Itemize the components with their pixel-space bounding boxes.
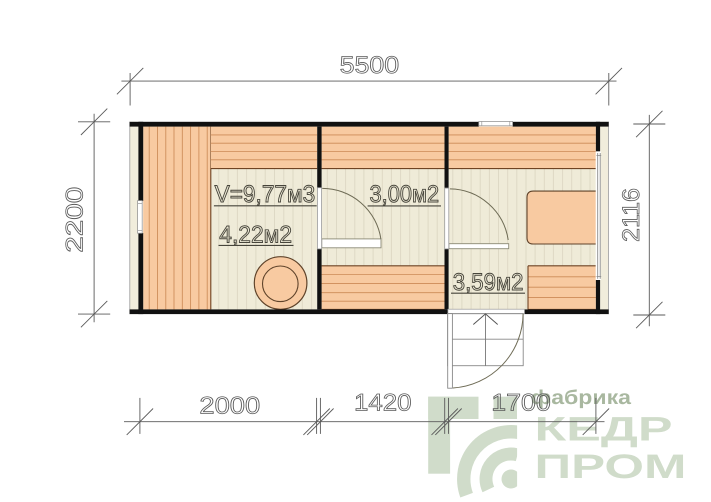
svg-text:2116: 2116 [618,188,645,242]
svg-text:3,59м2: 3,59м2 [453,269,524,296]
svg-text:2200: 2200 [61,187,88,253]
svg-text:2000: 2000 [199,392,260,419]
svg-text:3,00м2: 3,00м2 [370,181,440,208]
svg-text:V=9,77м3: V=9,77м3 [215,181,316,208]
svg-text:ПРОМ: ПРОМ [535,448,687,486]
svg-text:4,22м2: 4,22м2 [219,221,292,248]
svg-text:1700: 1700 [491,390,551,417]
svg-text:1420: 1420 [354,390,412,417]
svg-text:КЕДР: КЕДР [535,410,673,448]
svg-text:5500: 5500 [340,52,400,79]
